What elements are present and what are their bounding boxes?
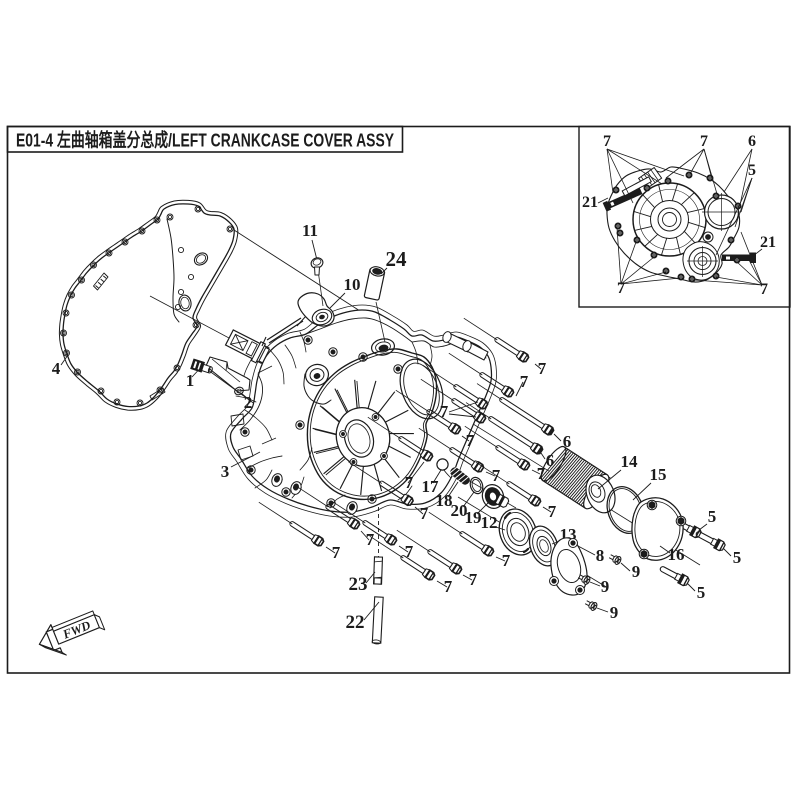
svg-text:1: 1 xyxy=(186,371,195,390)
svg-text:7: 7 xyxy=(603,133,611,150)
svg-text:22: 22 xyxy=(346,612,365,633)
svg-text:9: 9 xyxy=(601,577,610,596)
svg-text:7: 7 xyxy=(440,402,449,421)
svg-text:9: 9 xyxy=(610,603,619,622)
svg-text:7: 7 xyxy=(366,530,375,549)
svg-text:14: 14 xyxy=(621,452,639,471)
svg-text:9: 9 xyxy=(632,562,641,581)
svg-text:7: 7 xyxy=(548,502,557,521)
svg-text:7: 7 xyxy=(700,133,708,150)
svg-text:24: 24 xyxy=(386,247,408,271)
svg-text:21: 21 xyxy=(582,194,598,211)
svg-text:7: 7 xyxy=(520,372,529,391)
svg-text:7: 7 xyxy=(332,543,341,562)
svg-text:4: 4 xyxy=(52,359,61,378)
svg-text:6: 6 xyxy=(748,133,756,150)
svg-text:7: 7 xyxy=(420,504,429,523)
svg-text:7: 7 xyxy=(444,577,453,596)
svg-text:15: 15 xyxy=(650,465,667,484)
svg-text:16: 16 xyxy=(668,545,685,564)
svg-text:19: 19 xyxy=(465,508,482,527)
svg-text:E01-4 左曲轴箱盖分总成/LEFT CRANKCASE: E01-4 左曲轴箱盖分总成/LEFT CRANKCASE COVER ASSY xyxy=(16,130,394,151)
svg-text:5: 5 xyxy=(748,162,756,179)
svg-text:11: 11 xyxy=(302,221,318,240)
svg-text:5: 5 xyxy=(708,507,717,526)
svg-text:12: 12 xyxy=(481,513,498,532)
svg-text:3: 3 xyxy=(221,462,230,481)
svg-text:7: 7 xyxy=(405,473,414,492)
svg-text:7: 7 xyxy=(405,542,414,561)
svg-text:8: 8 xyxy=(596,546,605,565)
svg-text:7: 7 xyxy=(466,431,475,450)
svg-text:10: 10 xyxy=(344,275,361,294)
svg-text:7: 7 xyxy=(538,359,547,378)
svg-text:23: 23 xyxy=(349,574,368,595)
svg-text:5: 5 xyxy=(697,583,706,602)
svg-text:5: 5 xyxy=(733,548,742,567)
svg-text:21: 21 xyxy=(760,234,776,251)
svg-text:7: 7 xyxy=(469,570,478,589)
